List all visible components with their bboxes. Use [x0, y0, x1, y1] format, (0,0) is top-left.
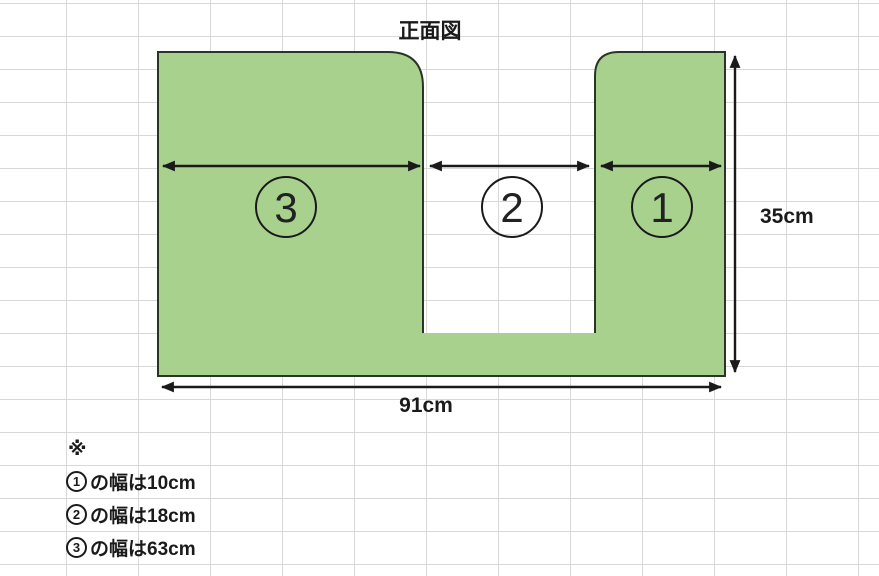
circled-number-3: 3 — [66, 537, 87, 558]
note-text: の幅は18cm — [90, 501, 196, 528]
panel-shape — [158, 52, 725, 376]
circled-number-2: 2 — [66, 504, 87, 525]
note-reference-mark: ※ — [68, 434, 86, 464]
circle-3-number: 3 — [274, 184, 297, 231]
total-width-dimension-label: 91cm — [354, 394, 498, 418]
note-text: の幅は63cm — [90, 534, 196, 561]
section-label-2: 2 — [482, 177, 542, 237]
circled-number-1: 1 — [66, 471, 87, 492]
note-section-3-width: 3の幅は63cm — [66, 531, 196, 564]
note-text: の幅は10cm — [90, 468, 196, 495]
note-section-1-width: 1の幅は10cm — [66, 465, 196, 498]
height-dimension-label: 35cm — [760, 205, 814, 229]
circle-1-number: 1 — [650, 184, 673, 231]
worksheet: 正面図 3 2 1 35cm 91cm — [0, 0, 879, 576]
circle-2-number: 2 — [500, 184, 523, 231]
note-section-2-width: 2の幅は18cm — [66, 498, 196, 531]
